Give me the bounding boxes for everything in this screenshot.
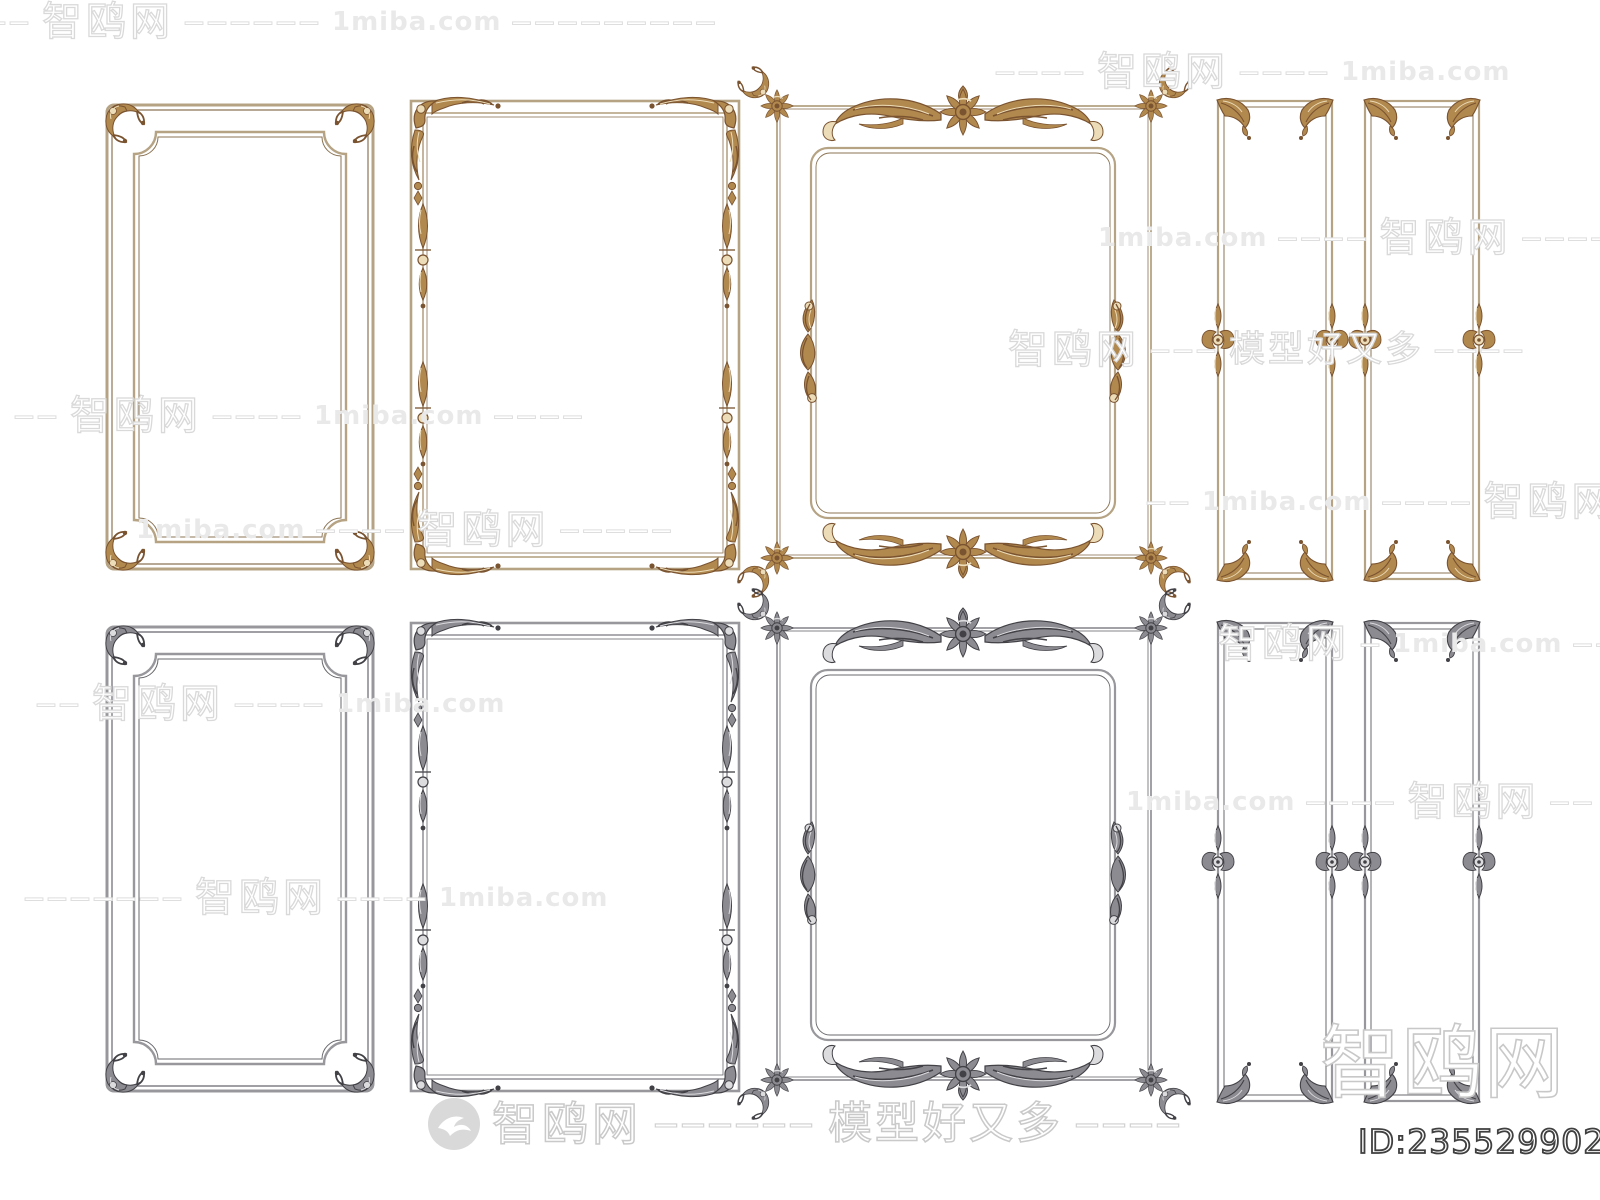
frame-gold-narrow-left — [1205, 90, 1345, 590]
frame-gold-ornate-corner — [400, 88, 750, 584]
watermark-dashes: —— — [36, 694, 82, 714]
watermark-row: ——智鸥网——————1miba.com————————— — [0, 2, 719, 42]
product-image-canvas: ——智鸥网——————1miba.com—————————————智鸥网————… — [0, 0, 1600, 1200]
watermark-dashes: —— — [0, 12, 32, 32]
watermark-brand: 智鸥网 — [492, 1101, 642, 1147]
watermark-dashes: ———— — [995, 62, 1087, 82]
frame-silver-cartouche-scroll — [753, 604, 1173, 1104]
frame-gold-narrow-right — [1352, 90, 1492, 590]
watermark-dashes: —— — [14, 406, 60, 426]
watermark-dashes: ————— — [1522, 228, 1600, 248]
frame-gold-simple-panel — [100, 98, 380, 576]
watermark-dashes: —— — [1550, 792, 1596, 812]
product-id-badge: ID:235529902 — [1358, 1124, 1600, 1160]
watermark-domain: 1miba.com — [1341, 59, 1511, 85]
watermark-dashes: —————— — [654, 1112, 816, 1136]
watermark-domain: 1miba.com — [332, 9, 502, 35]
watermark-dashes: ———— — [1239, 62, 1331, 82]
frame-silver-ornate-corner — [400, 610, 750, 1106]
frame-silver-narrow-left — [1205, 612, 1345, 1112]
frame-silver-narrow-right — [1352, 612, 1492, 1112]
watermark-dashes: ——— — [1573, 634, 1600, 654]
watermark-brand: 智鸥网 — [1484, 482, 1600, 522]
frame-gold-cartouche-scroll — [753, 82, 1173, 582]
watermark-dashes: ————————— — [512, 12, 719, 32]
frame-silver-simple-panel — [100, 620, 380, 1098]
watermark-slogan: 模型好又多 — [828, 1102, 1063, 1146]
watermark-row: 1miba.com————智鸥网————— — [1098, 218, 1600, 258]
watermark-dashes: —————— — [184, 12, 322, 32]
watermark-brand: 智鸥网 — [42, 2, 174, 42]
